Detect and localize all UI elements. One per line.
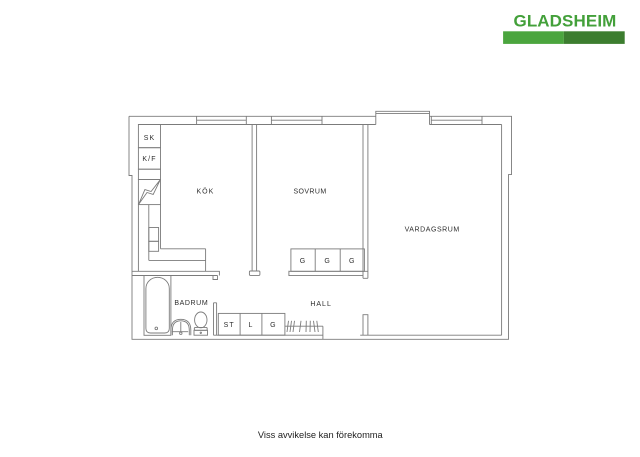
svg-text:BADRUM: BADRUM bbox=[174, 300, 208, 307]
svg-text:KÖK: KÖK bbox=[197, 187, 215, 195]
svg-text:K/F: K/F bbox=[142, 156, 156, 163]
svg-text:GLADSHEIM: GLADSHEIM bbox=[514, 11, 617, 30]
svg-text:SOVRUM: SOVRUM bbox=[293, 188, 326, 195]
svg-text:SK: SK bbox=[144, 135, 156, 142]
svg-text:Viss avvikelse kan förekomma: Viss avvikelse kan förekomma bbox=[258, 430, 384, 440]
svg-text:ST: ST bbox=[224, 322, 235, 329]
svg-text:VARDAGSRUM: VARDAGSRUM bbox=[405, 227, 460, 234]
svg-text:G: G bbox=[324, 258, 331, 265]
svg-text:L: L bbox=[249, 322, 254, 329]
svg-text:HALL: HALL bbox=[310, 301, 332, 308]
svg-text:G: G bbox=[349, 258, 356, 265]
svg-text:G: G bbox=[300, 258, 307, 265]
svg-text:G: G bbox=[270, 322, 277, 329]
